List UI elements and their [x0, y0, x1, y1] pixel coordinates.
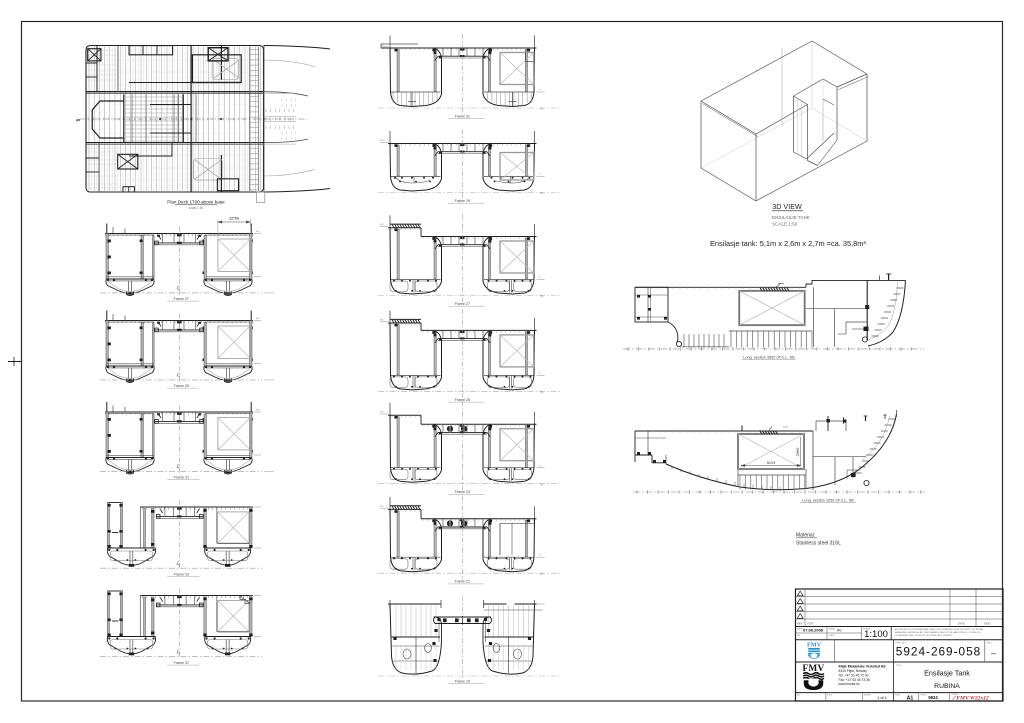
svg-text:ℒ: ℒ: [176, 561, 180, 567]
svg-text:2666: 2666: [795, 447, 800, 457]
svg-text:Frame 29: Frame 29: [174, 384, 189, 388]
svg-text:A1: A1: [907, 695, 914, 701]
svg-text:Ensilasje tank: 5,1m x 2,6m x: Ensilasje tank: 5,1m x 2,6m x 2,7m =ca. …: [710, 239, 866, 248]
svg-text:FMV: FMV: [802, 663, 824, 673]
svg-text:Frame 31: Frame 31: [455, 115, 470, 119]
svg-text:OTHERWISE USED, WITHOUT OUR WR: OTHERWISE USED, WITHOUT OUR WRITTEN CONS…: [895, 635, 953, 637]
svg-text:RUBINA: RUBINA: [934, 683, 960, 690]
svg-text:–: –: [991, 648, 996, 658]
svg-text:TEXT: TEXT: [807, 622, 814, 626]
svg-text:ENSILASJE TANK: ENSILASJE TANK: [772, 215, 811, 220]
svg-text:MD: MD: [380, 412, 384, 414]
svg-text:REV: REV: [797, 622, 803, 626]
svg-text:MD: MD: [380, 506, 384, 508]
svg-text:5419 Fitjar, Norway: 5419 Fitjar, Norway: [839, 669, 868, 673]
svg-text:MD: MD: [256, 318, 260, 320]
svg-text:5924: 5924: [928, 695, 938, 700]
svg-text:ℒ: ℒ: [176, 286, 180, 292]
svg-text:CHKD: CHKD: [829, 635, 836, 637]
svg-text:TOP: TOP: [783, 426, 788, 429]
svg-text:Frame 37: Frame 37: [174, 661, 189, 665]
svg-text:ℒ: ℒ: [176, 650, 180, 656]
svg-text:Fax: +47 53 45 73 35: Fax: +47 53 45 73 35: [839, 678, 870, 682]
svg-text:Stainless steel 316L: Stainless steel 316L: [796, 541, 841, 547]
svg-text:Frame 27: Frame 27: [455, 302, 470, 306]
svg-text:SHEET: SHEET: [864, 695, 872, 697]
svg-text:SIGN: SIGN: [984, 622, 990, 626]
svg-text:1:100: 1:100: [864, 629, 888, 640]
svg-text:scale 1:50: scale 1:50: [189, 206, 204, 210]
svg-text:5924-269-058: 5924-269-058: [896, 645, 981, 659]
svg-text:2779: 2779: [229, 216, 239, 221]
svg-text:Tel: +47 53 45 72 00: Tel: +47 53 45 72 00: [839, 673, 869, 677]
svg-text:FILE: FILE: [828, 695, 833, 697]
svg-text:MD: MD: [256, 410, 260, 412]
svg-text:Frame 27: Frame 27: [174, 297, 189, 301]
svg-text:Frame 31: Frame 31: [174, 476, 189, 480]
svg-text:MD: MD: [380, 44, 384, 46]
svg-text:SCALE 1:50: SCALE 1:50: [772, 222, 798, 227]
svg-text:07.06.2008: 07.06.2008: [803, 628, 824, 633]
svg-text:FMV: FMV: [807, 642, 822, 649]
svg-text:Frame 29: Frame 29: [455, 199, 470, 203]
svg-text:MD: MD: [380, 224, 384, 226]
svg-text:5119: 5119: [767, 460, 776, 465]
svg-text:Long. section 1650 off C.L. SB: Long. section 1650 off C.L. SB: [802, 499, 854, 503]
svg-text:ACCORDING TO INTERNATIONAL LAW: ACCORDING TO INTERNATIONAL LAWS, THIS DR…: [895, 628, 984, 631]
svg-text:Frame 21: Frame 21: [455, 580, 470, 584]
svg-text:REV.: REV.: [987, 643, 992, 645]
svg-text:Fitjar Mekaniske Verksted AS: Fitjar Mekaniske Verksted AS: [839, 665, 887, 669]
svg-text:MD: MD: [380, 319, 384, 321]
svg-text:SIZE: SIZE: [895, 694, 900, 696]
svg-text:3D VIEW: 3D VIEW: [772, 202, 802, 211]
svg-text:PROJ.: PROJ.: [921, 694, 928, 696]
svg-text:MEKANISKE VERKSTED AS. THE DRA: MEKANISKE VERKSTED AS. THE DRAWING CAN N…: [895, 631, 982, 634]
svg-text:www.fmvas.no: www.fmvas.no: [839, 682, 860, 686]
svg-text:Frame 23: Frame 23: [455, 490, 470, 494]
svg-text:Frame 19: Frame 19: [455, 680, 470, 684]
svg-text:Long. section 3650 off C.L. SB: Long. section 3650 off C.L. SB: [743, 355, 795, 359]
svg-text:Ensilasje Tank: Ensilasje Tank: [924, 669, 970, 678]
svg-text:ℒ: ℒ: [176, 373, 180, 379]
svg-text:1 of 1: 1 of 1: [877, 695, 888, 700]
svg-text:ℒ: ℒ: [176, 464, 180, 470]
svg-text:⇄: ⇄: [76, 118, 80, 123]
svg-text:Frame 33: Frame 33: [174, 573, 189, 577]
svg-text:DATE: DATE: [958, 622, 965, 626]
svg-text:MD: MD: [380, 140, 384, 142]
svg-text:TITLE: TITLE: [896, 665, 902, 667]
svg-text:∕∕ FMV W22x12: ∕∕ FMV W22x12: [952, 695, 989, 701]
svg-text:RE: RE: [797, 635, 801, 637]
svg-text:Plan Deck 1700 above base: Plan Deck 1700 above base: [167, 200, 225, 205]
svg-text:AV: AV: [837, 629, 842, 633]
svg-text:DRWN: DRWN: [829, 628, 836, 630]
svg-text:MD: MD: [256, 231, 260, 233]
